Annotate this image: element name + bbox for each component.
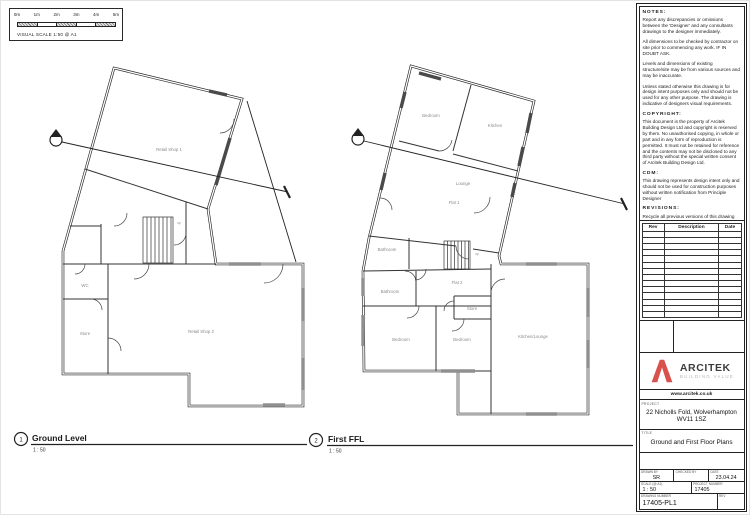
ground-floor-plan: Retail Shop 1 Retail Shop 2 WC Store up … — [15, 68, 308, 454]
website-link[interactable]: www.arcitek.co.uk — [640, 389, 744, 399]
project-address-line2: WV11 1SZ — [640, 416, 744, 423]
description-col-header: Description — [664, 223, 719, 231]
room-label: Kitchen/Lounge — [518, 334, 548, 339]
notes-heading: NOTES: — [643, 10, 741, 16]
room-label: Retail Shop 2 — [188, 329, 214, 334]
room-label: Lounge — [456, 181, 471, 186]
scale-field: SCALE (@ A1) 1 : 50 — [640, 482, 692, 494]
room-label: Bathroom — [381, 289, 400, 294]
drawing-title: Ground and First Floor Plans — [640, 439, 744, 446]
first-plan-title: 2 First FFL 1 : 50 — [310, 434, 634, 455]
ground-windows-dark — [209, 91, 230, 185]
room-label: Bedroom — [392, 337, 410, 342]
ground-section-marker — [50, 129, 290, 198]
plan-title: Ground Level — [32, 433, 87, 443]
note-paragraph: Levels and dimensions of existing struct… — [643, 61, 741, 79]
ground-plan-title: 1 Ground Level 1 : 50 — [15, 433, 308, 454]
cdm-heading: CDM: — [643, 171, 741, 177]
plan-scale: 1 : 50 — [329, 449, 342, 455]
plan-title: First FFL — [328, 434, 364, 444]
stamp-box-left — [640, 321, 674, 352]
stair-label: up — [475, 252, 479, 256]
ground-doors — [75, 119, 283, 351]
title-block-panel: NOTES: Report any discrepancies or omiss… — [636, 3, 747, 512]
first-floor-plan: Bedroom Kitchen Lounge Flat 1 Bathroom F… — [310, 66, 634, 455]
title-label: TITLE — [642, 431, 653, 435]
project-label: PROJECT — [642, 402, 660, 406]
room-label: Retail Shop 1 — [156, 147, 182, 152]
revision-table: Rev Description Date — [642, 223, 742, 319]
revision-table-body — [642, 231, 741, 318]
room-label: Bedroom — [453, 337, 471, 342]
project-number-field: PROJECT NUMBER 17405 — [692, 482, 744, 494]
drawing-sheet: 0m 1m 2m 3m 4m 5m VISUAL SCALE 1:50 @ A1 — [0, 0, 750, 515]
checked-by-field: CHECKED BY — [674, 470, 709, 482]
revision-empty-row — [642, 312, 741, 318]
note-paragraph: Unless stated otherwise this drawing is … — [643, 84, 741, 108]
drawing-title-box: TITLE Ground and First Floor Plans — [640, 429, 744, 452]
ground-windows — [229, 264, 303, 405]
spare-box — [640, 452, 744, 469]
project-box: PROJECT 22 Nicholls Fold, Wolverhampton … — [640, 399, 744, 429]
note-paragraph: Report any discrepancies or omissions be… — [643, 17, 741, 35]
floor-plans-canvas: Retail Shop 1 Retail Shop 2 WC Store up … — [1, 1, 641, 516]
project-address-line1: 22 Nicholls Fold, Wolverhampton — [640, 409, 744, 416]
room-label: Kitchen — [488, 123, 503, 128]
site-boundary-line — [247, 101, 296, 262]
notes-section: NOTES: Report any discrepancies or omiss… — [640, 7, 744, 220]
room-label: Store — [467, 306, 478, 311]
revisions-heading: REVISIONS: — [643, 206, 741, 212]
room-label: Store — [80, 331, 91, 336]
drawn-by-field: DRAWN BY SR — [640, 470, 675, 482]
note-paragraph: All dimensions to be checked by contract… — [643, 39, 741, 57]
drawing-number-field: DRAWING NUMBER 17405-PL1 — [640, 494, 718, 509]
room-label: Flat 2 — [452, 280, 463, 285]
stamp-boxes — [640, 320, 744, 352]
stamp-box-right — [674, 321, 744, 352]
revision-table-section: Rev Description Date — [640, 220, 744, 321]
note-paragraph: This document is the property of Arcitek… — [643, 119, 741, 166]
rev-col-header: Rev — [642, 223, 664, 231]
title-block-fields: DRAWN BY SR CHECKED BY DATE 23.04.24 SCA… — [640, 469, 744, 509]
ground-stair — [143, 217, 173, 263]
stair-label: up — [177, 221, 181, 225]
brand-tagline: BUILDING VALUE — [680, 375, 734, 379]
date-field: DATE 23.04.24 — [709, 470, 744, 482]
note-paragraph: This drawing represents design intent on… — [643, 178, 741, 202]
first-doors — [380, 140, 505, 331]
ground-interior-walls — [63, 169, 216, 374]
arcitek-logo-icon — [649, 358, 675, 384]
brand-name: ARCITEK — [680, 363, 734, 374]
room-label: WC — [81, 283, 88, 288]
plan-scale: 1 : 50 — [33, 448, 46, 454]
rev-field: REV — [718, 494, 744, 509]
date-col-header: Date — [719, 223, 741, 231]
room-label: Bathroom — [378, 247, 397, 252]
company-logo: ARCITEK BUILDING VALUE — [640, 352, 744, 389]
room-label: Flat 1 — [449, 200, 460, 205]
copyright-heading: COPYRIGHT: — [643, 112, 741, 118]
room-label: Bedroom — [422, 113, 440, 118]
